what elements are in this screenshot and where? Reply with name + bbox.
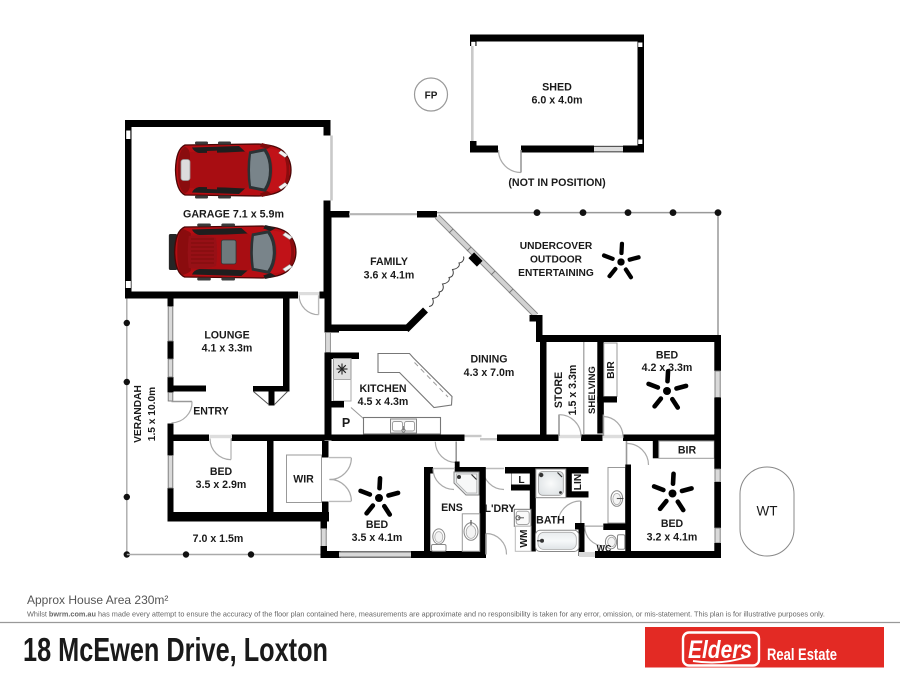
svg-text:LOUNGE: LOUNGE (204, 330, 249, 342)
svg-text:Real Estate: Real Estate (767, 646, 837, 664)
svg-text:7.0 x 1.5m: 7.0 x 1.5m (193, 533, 244, 545)
svg-text:3.6 x 4.1m: 3.6 x 4.1m (364, 270, 415, 282)
svg-text:Elders: Elders (688, 636, 752, 664)
svg-text:OUTDOOR: OUTDOOR (530, 255, 583, 266)
svg-text:SHED: SHED (542, 81, 572, 93)
svg-text:L'DRY: L'DRY (485, 503, 516, 515)
svg-text:1.5 x 3.3m: 1.5 x 3.3m (567, 365, 579, 416)
svg-text:1.5 x 10.0m: 1.5 x 10.0m (147, 387, 158, 441)
svg-text:(NOT IN POSITION): (NOT IN POSITION) (508, 177, 606, 189)
svg-text:BED: BED (366, 519, 389, 531)
svg-text:P: P (342, 416, 350, 430)
svg-text:Approx House Area 230m²: Approx House Area 230m² (27, 593, 168, 607)
svg-text:VERANDAH: VERANDAH (133, 385, 144, 443)
svg-text:WM: WM (519, 529, 530, 547)
svg-text:WIR: WIR (293, 474, 314, 486)
svg-text:BED: BED (210, 466, 233, 478)
svg-text:BIR: BIR (606, 361, 617, 379)
svg-text:4.1 x 3.3m: 4.1 x 3.3m (202, 342, 253, 354)
svg-text:Whilst bwrm.com.au has made ev: Whilst bwrm.com.au has made every attemp… (27, 610, 825, 619)
svg-text:ENS: ENS (441, 502, 463, 514)
svg-text:FP: FP (425, 90, 438, 101)
svg-text:3.5 x 4.1m: 3.5 x 4.1m (352, 532, 403, 544)
svg-text:WT: WT (757, 504, 778, 519)
svg-text:3.5 x 2.9m: 3.5 x 2.9m (196, 479, 247, 491)
svg-text:KITCHEN: KITCHEN (359, 383, 406, 395)
svg-text:ENTRY: ENTRY (193, 406, 229, 418)
svg-text:DINING: DINING (470, 354, 507, 366)
svg-text:18 McEwen Drive, Loxton: 18 McEwen Drive, Loxton (23, 631, 328, 668)
svg-text:FAMILY: FAMILY (370, 256, 408, 268)
svg-text:BATH: BATH (536, 514, 565, 526)
svg-text:UNDERCOVER: UNDERCOVER (520, 241, 593, 252)
svg-text:SHELVING: SHELVING (587, 366, 598, 414)
svg-text:4.5 x 4.3m: 4.5 x 4.3m (358, 396, 409, 408)
svg-text:L: L (518, 475, 524, 486)
svg-text:3.2 x 4.1m: 3.2 x 4.1m (647, 532, 698, 544)
svg-text:ENTERTAINING: ENTERTAINING (518, 268, 594, 279)
svg-text:BED: BED (661, 518, 684, 530)
svg-text:6.0 x 4.0m: 6.0 x 4.0m (531, 94, 582, 106)
svg-text:BIR: BIR (678, 445, 697, 457)
svg-text:GARAGE 7.1 x 5.9m: GARAGE 7.1 x 5.9m (183, 209, 284, 221)
svg-text:STORE: STORE (553, 372, 565, 408)
svg-text:BED: BED (656, 350, 679, 362)
svg-text:4.2 x 3.3m: 4.2 x 3.3m (642, 362, 693, 374)
svg-text:4.3 x 7.0m: 4.3 x 7.0m (464, 367, 515, 379)
svg-text:LIN: LIN (573, 474, 584, 490)
